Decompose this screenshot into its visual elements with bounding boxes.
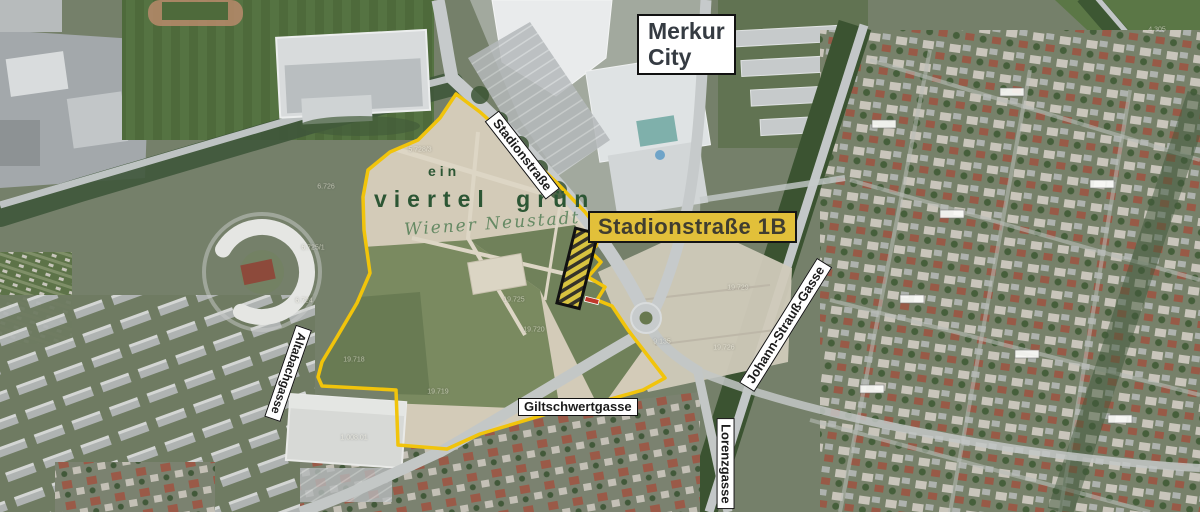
parcel-number: 19.725 (503, 297, 524, 304)
parcel-number: 6.726 (317, 184, 335, 191)
parcel-number: 4.305 (1148, 27, 1166, 34)
aerial-basemap (0, 0, 1200, 512)
merkur-city-line1: Merkur (648, 18, 725, 44)
roundabout (631, 303, 661, 333)
address-highlight-label: Stadionstraße 1B (588, 211, 797, 243)
industrial-building (276, 30, 430, 126)
parcel-number: 19.729 (727, 285, 748, 292)
parcel-number: 19.719 (427, 389, 448, 396)
parcel-number: 5.728/3 (408, 147, 431, 154)
street-label-lorenzgasse: Lorenzgasse (717, 418, 735, 509)
street-label-giltschwertgasse: Giltschwertgasse (518, 398, 638, 416)
parcel-number: 9.135 (653, 339, 671, 346)
parcel-number: 19.720 (523, 327, 544, 334)
parcel-number: 6.725/1 (301, 245, 324, 252)
parcel-number: 19.718 (343, 357, 364, 364)
merkur-city-label: Merkur City (637, 14, 736, 75)
parcel-number: 19.726 (713, 345, 734, 352)
supermarket-building (286, 394, 406, 468)
parcel-number: 1.008.01 (340, 435, 367, 442)
parcel-number: 6.724 (295, 298, 313, 305)
merkur-city-line2: City (648, 44, 725, 70)
aerial-map-view: Merkur City Stadionstraße 1B Stadionstra… (0, 0, 1200, 512)
project-title-line1: ein (428, 163, 460, 179)
